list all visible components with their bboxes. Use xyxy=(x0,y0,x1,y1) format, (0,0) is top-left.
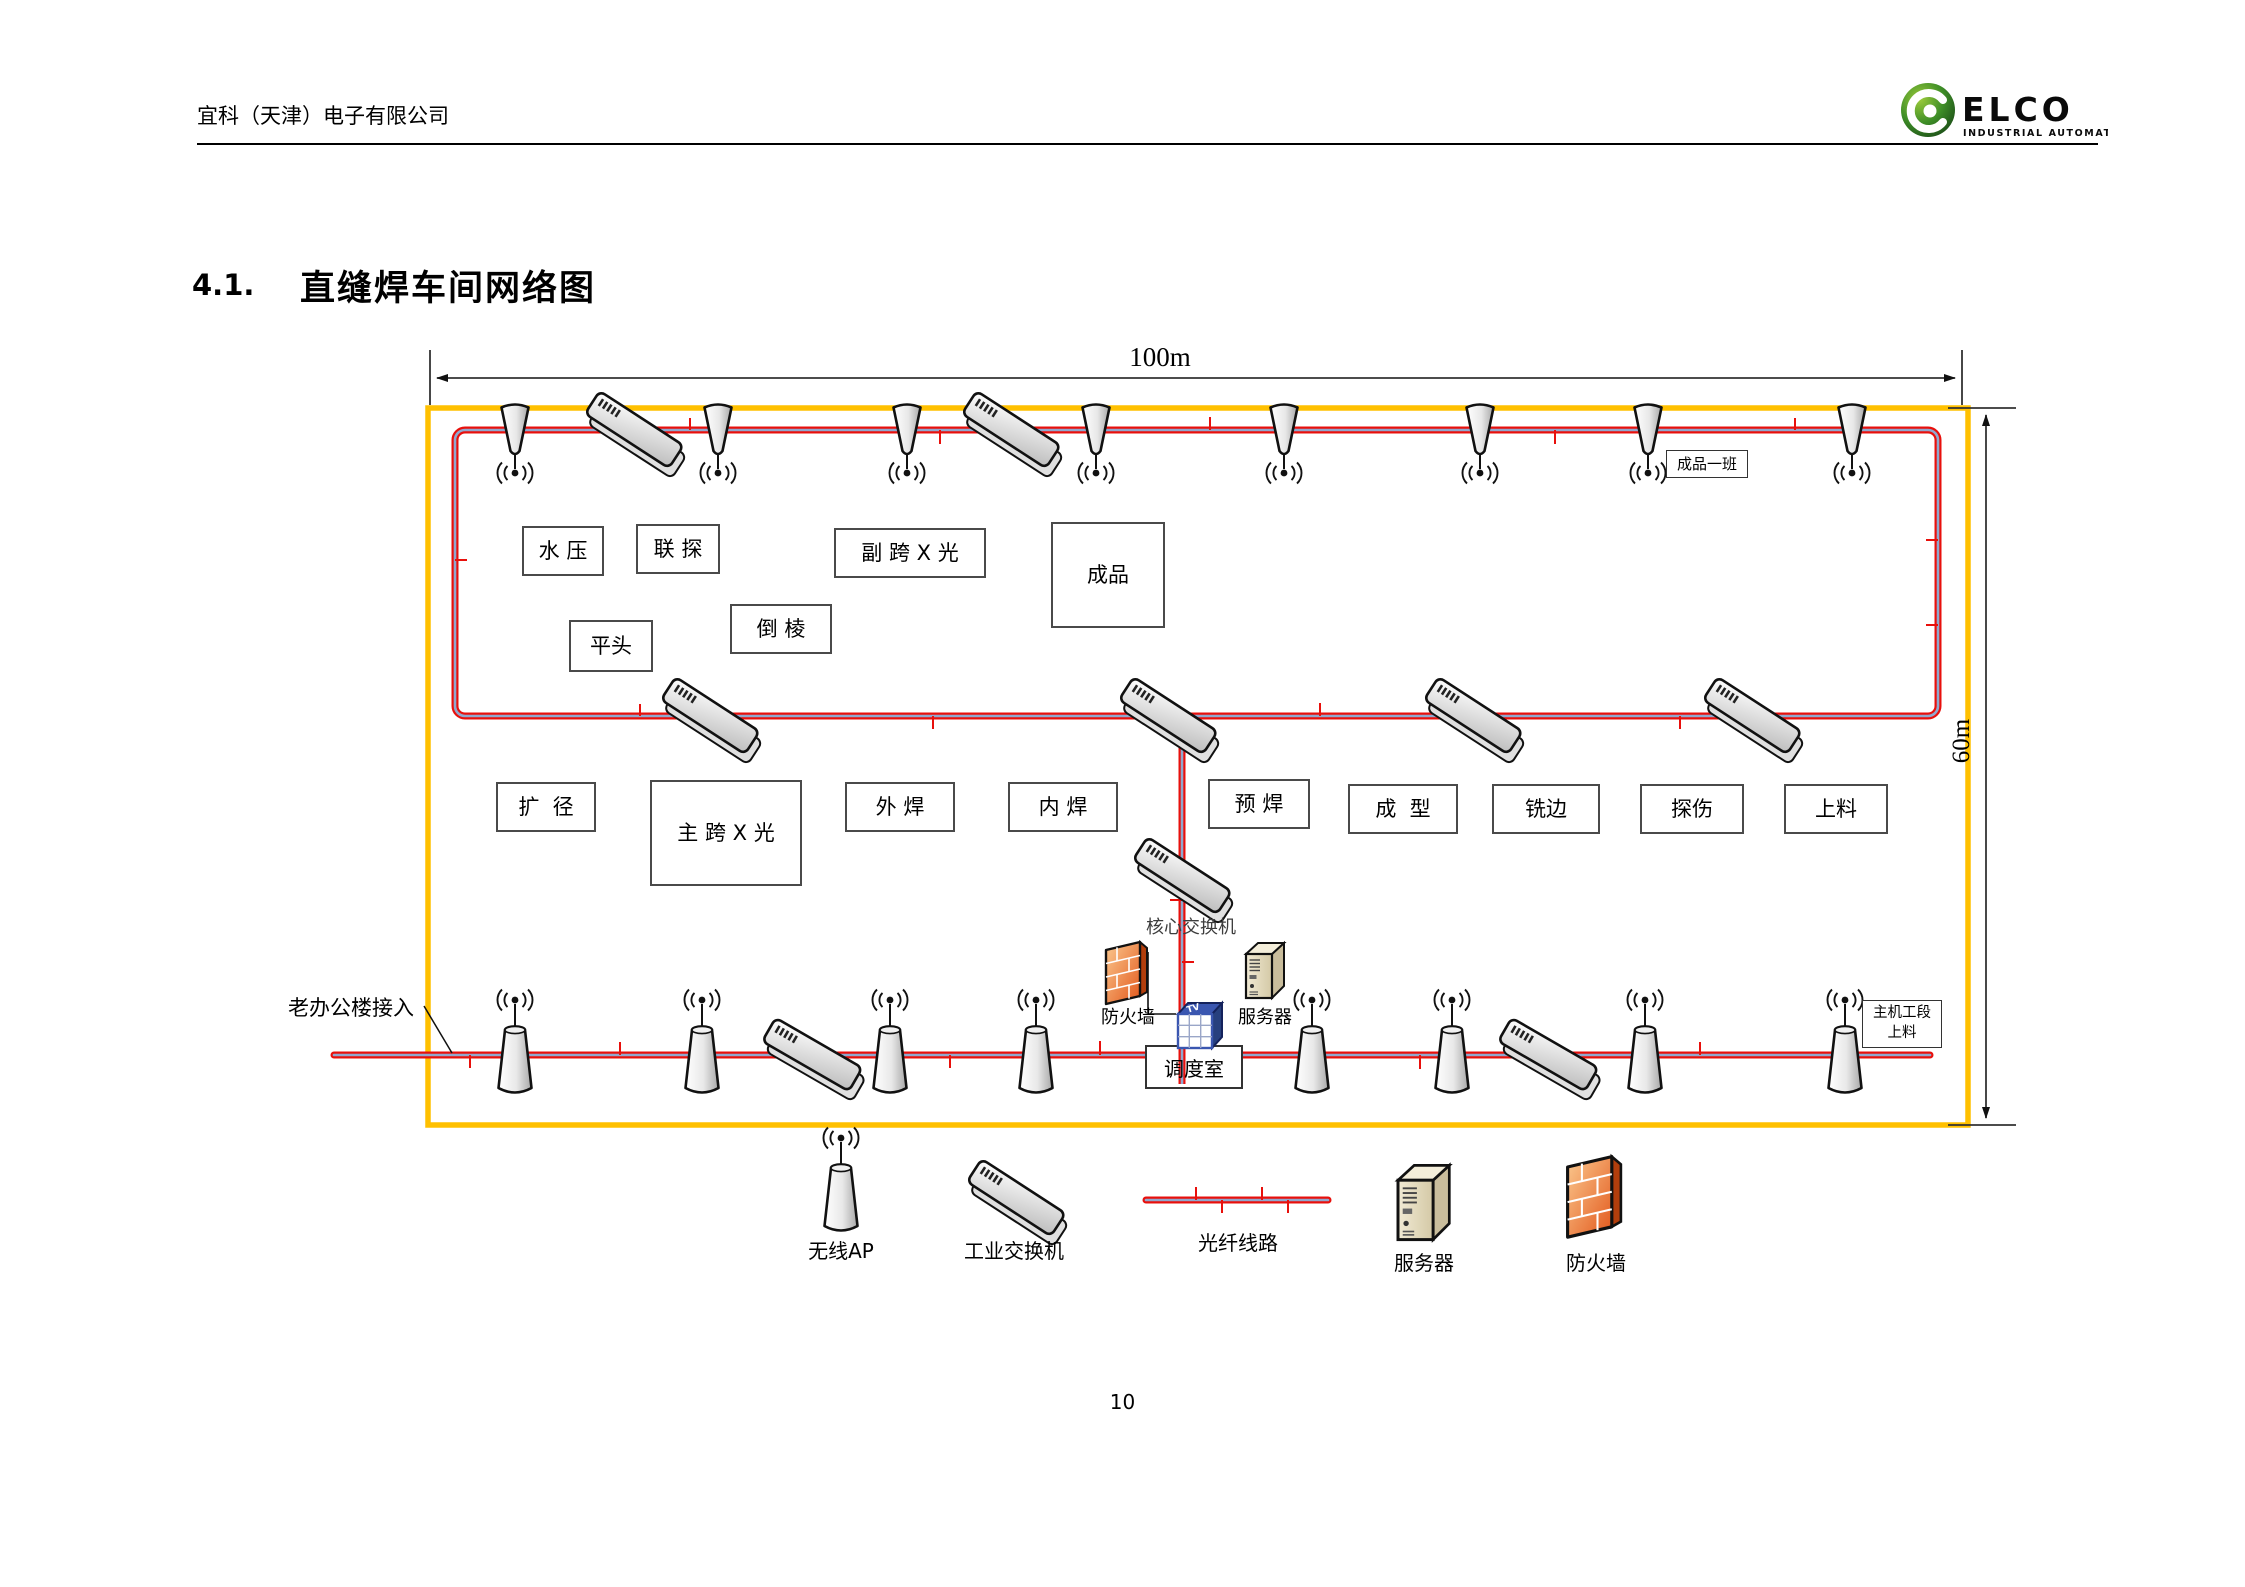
wireless-ap-icon xyxy=(498,990,533,1093)
legend-firewall-icon xyxy=(1568,1157,1621,1238)
ceiling-ap-row xyxy=(498,405,1870,484)
legend-fiber-line-icon xyxy=(1146,1187,1328,1213)
legend-label-firewall: 防火墙 xyxy=(1554,1250,1638,1276)
industrial-switch-icon xyxy=(1495,1018,1606,1101)
firewall-icon xyxy=(1106,942,1147,1004)
core-switch-label: 核心交换机 xyxy=(1124,916,1258,940)
industrial-switch-icon xyxy=(759,1018,870,1101)
wireless-ap-icon xyxy=(498,405,533,484)
station-box-pingtou: 平头 xyxy=(569,620,653,672)
network-diagram: TV 调度室 xyxy=(0,0,2245,1587)
legend-label-fiber-line: 光纤线路 xyxy=(1188,1230,1288,1256)
legend-label-industrial-switch: 工业交换机 xyxy=(946,1238,1082,1264)
wireless-ap-icon xyxy=(1631,405,1666,484)
host-section-line2: 上料 xyxy=(1888,1024,1917,1044)
industrial-switch-icon xyxy=(1699,677,1808,764)
firewall-connector-line xyxy=(1148,952,1176,1014)
station-box-daoleng: 倒 棱 xyxy=(730,604,832,654)
wireless-ap-icon xyxy=(1079,405,1114,484)
station-box-shuiya: 水 压 xyxy=(522,526,604,576)
station-box-fukua-xguang: 副 跨 X 光 xyxy=(834,528,986,578)
wireless-ap-icon xyxy=(685,990,720,1093)
industrial-switch-icon xyxy=(958,391,1067,478)
dispatch-terminal-icon: TV xyxy=(1178,1002,1222,1048)
station-box-liantan: 联 探 xyxy=(636,524,720,574)
office-access-label: 老办公楼接入 xyxy=(278,994,424,1022)
station-box-yuhan: 预 焊 xyxy=(1208,779,1310,829)
station-box-zhukua-xguang: 主 跨 X 光 xyxy=(650,780,802,886)
wireless-ap-icon xyxy=(1019,990,1054,1093)
page-number: 10 xyxy=(0,1390,2245,1414)
legend-wireless-ap-icon xyxy=(824,1128,859,1231)
wireless-ap-icon xyxy=(1435,990,1470,1093)
industrial-switch-icon xyxy=(1420,677,1529,764)
wireless-ap-icon xyxy=(1295,990,1330,1093)
finished-team-label: 成品一班 xyxy=(1666,450,1748,478)
wireless-ap-icon xyxy=(1463,405,1498,484)
station-box-waihan: 外 焊 xyxy=(845,782,955,832)
wireless-ap-icon xyxy=(1828,990,1863,1093)
dimension-width-label: 100m xyxy=(1080,342,1240,374)
station-box-kuojing: 扩 径 xyxy=(496,782,596,832)
station-box-neihan: 内 焊 xyxy=(1008,782,1118,832)
wireless-ap-icon xyxy=(873,990,908,1093)
document-page: 宜科（天津）电子有限公司 ELCO INDUSTRIAL AUTOMATION … xyxy=(0,0,2245,1587)
server-label: 服务器 xyxy=(1227,1006,1303,1030)
industrial-switch-icon xyxy=(581,391,690,478)
legend-label-wireless-ap: 无线AP xyxy=(794,1238,888,1264)
station-box-tanshang: 探伤 xyxy=(1640,784,1744,834)
station-box-chengxing: 成 型 xyxy=(1348,784,1458,834)
station-box-shangliao: 上料 xyxy=(1784,784,1888,834)
dispatch-room-label: 调度室 xyxy=(1164,1057,1224,1081)
industrial-switch-icon xyxy=(657,677,766,764)
server-icon xyxy=(1246,943,1284,998)
host-section-line1: 主机工段 xyxy=(1873,1004,1931,1024)
dimension-height-label: 60m xyxy=(1947,691,1977,791)
industrial-switch-icon xyxy=(1115,677,1224,764)
legend-industrial-switch-icon xyxy=(963,1159,1072,1246)
legend-server-icon xyxy=(1398,1165,1449,1239)
wireless-ap-icon xyxy=(1835,405,1870,484)
wireless-ap-icon xyxy=(1628,990,1663,1093)
station-box-chengpin: 成品 xyxy=(1051,522,1165,628)
legend-label-server: 服务器 xyxy=(1382,1250,1466,1276)
wireless-ap-icon xyxy=(1267,405,1302,484)
legend-icons xyxy=(824,1128,1621,1247)
host-section-label: 主机工段 上料 xyxy=(1862,1000,1942,1048)
wireless-ap-icon xyxy=(890,405,925,484)
wireless-ap-icon xyxy=(701,405,736,484)
firewall-label: 防火墙 xyxy=(1090,1006,1166,1030)
station-box-xibian: 铣边 xyxy=(1492,784,1600,834)
